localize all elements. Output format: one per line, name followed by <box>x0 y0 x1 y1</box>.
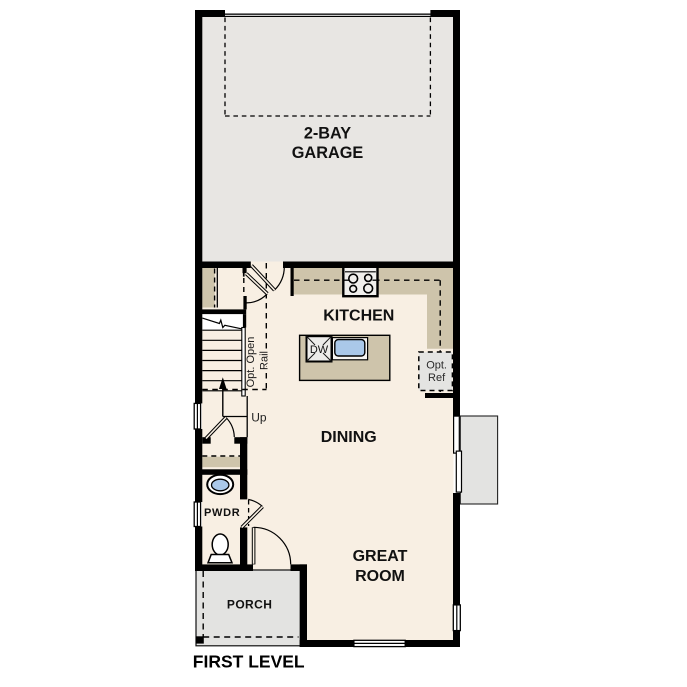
svg-text:Ref: Ref <box>428 372 446 384</box>
svg-text:KITCHEN: KITCHEN <box>323 308 394 325</box>
svg-text:ROOM: ROOM <box>355 568 405 585</box>
svg-text:GREAT: GREAT <box>353 548 408 565</box>
svg-text:2-BAY: 2-BAY <box>304 124 351 142</box>
svg-text:DW: DW <box>310 344 329 356</box>
svg-text:FIRST LEVEL: FIRST LEVEL <box>193 651 305 671</box>
svg-text:Opt. Open: Opt. Open <box>245 337 257 388</box>
svg-text:GARAGE: GARAGE <box>292 144 364 162</box>
svg-text:Opt.: Opt. <box>426 360 447 372</box>
svg-text:PWDR: PWDR <box>204 507 240 519</box>
svg-text:DINING: DINING <box>321 429 377 446</box>
svg-text:Up: Up <box>251 411 267 425</box>
svg-text:PORCH: PORCH <box>227 597 272 611</box>
svg-text:Rail: Rail <box>259 351 271 370</box>
